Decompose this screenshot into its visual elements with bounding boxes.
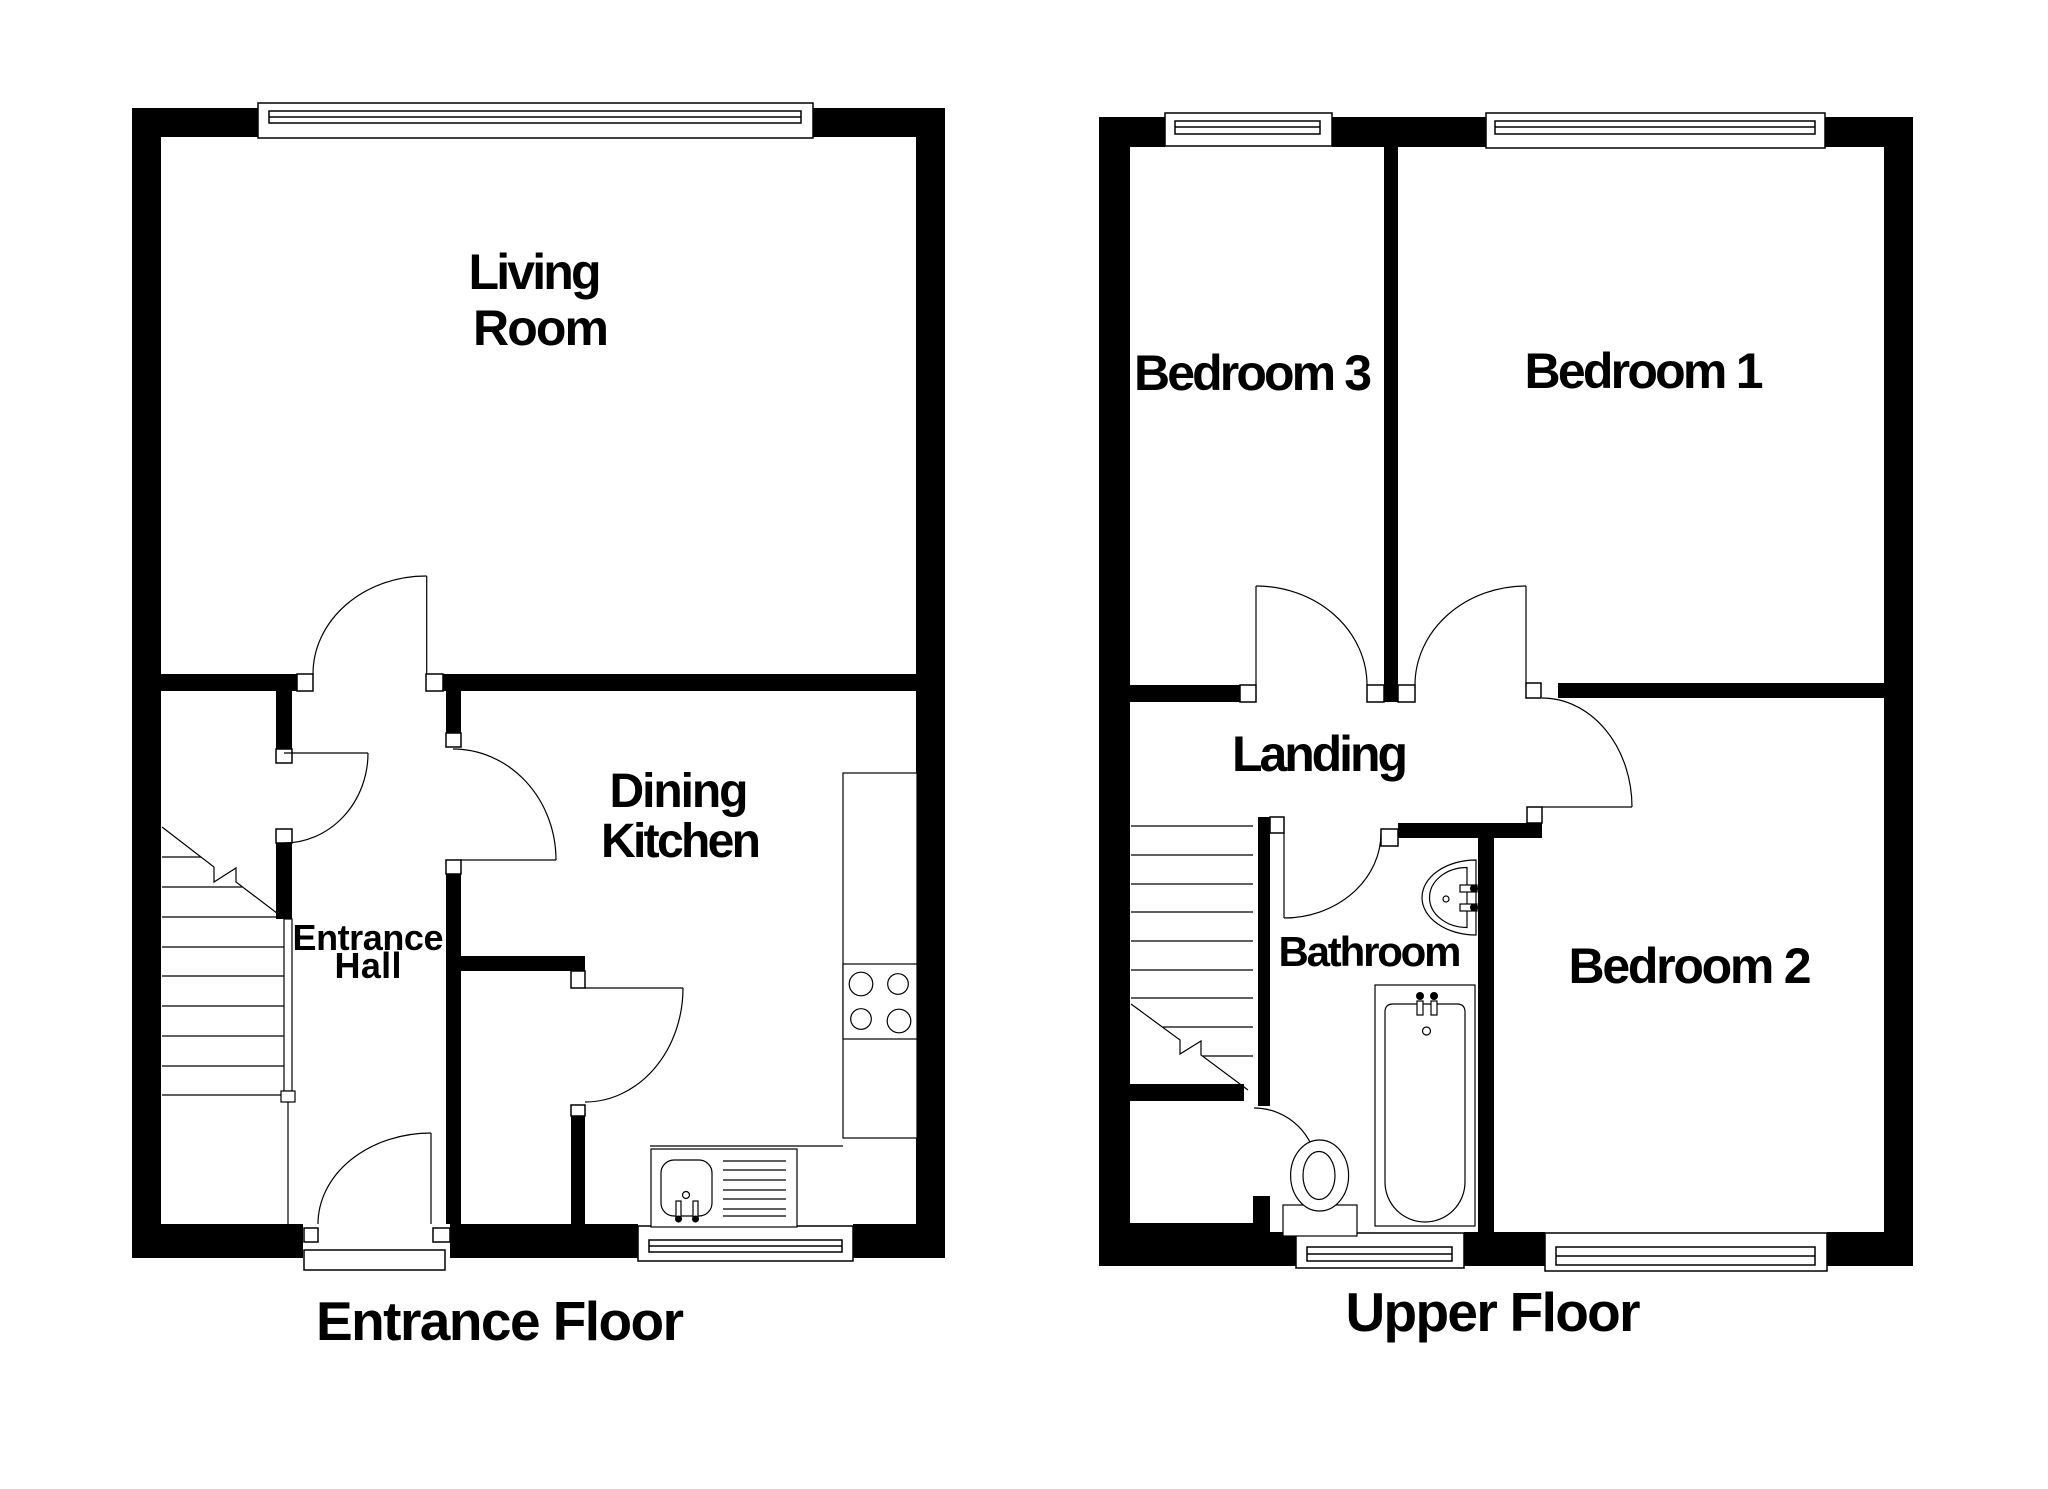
svg-text:Bedroom 3: Bedroom 3 xyxy=(1134,345,1372,401)
svg-text:Kitchen: Kitchen xyxy=(601,815,761,868)
svg-text:Entrance Floor: Entrance Floor xyxy=(316,1290,684,1352)
svg-text:Bedroom 1: Bedroom 1 xyxy=(1525,343,1764,399)
svg-text:Hall: Hall xyxy=(335,945,402,986)
svg-text:Room: Room xyxy=(473,300,609,356)
svg-text:Upper Floor: Upper Floor xyxy=(1346,1281,1641,1343)
svg-text:Living: Living xyxy=(469,244,602,300)
svg-text:Bathroom: Bathroom xyxy=(1279,928,1462,975)
svg-text:Bedroom 2: Bedroom 2 xyxy=(1569,938,1812,994)
svg-text:Landing: Landing xyxy=(1232,726,1408,782)
svg-text:Dining: Dining xyxy=(610,765,749,818)
